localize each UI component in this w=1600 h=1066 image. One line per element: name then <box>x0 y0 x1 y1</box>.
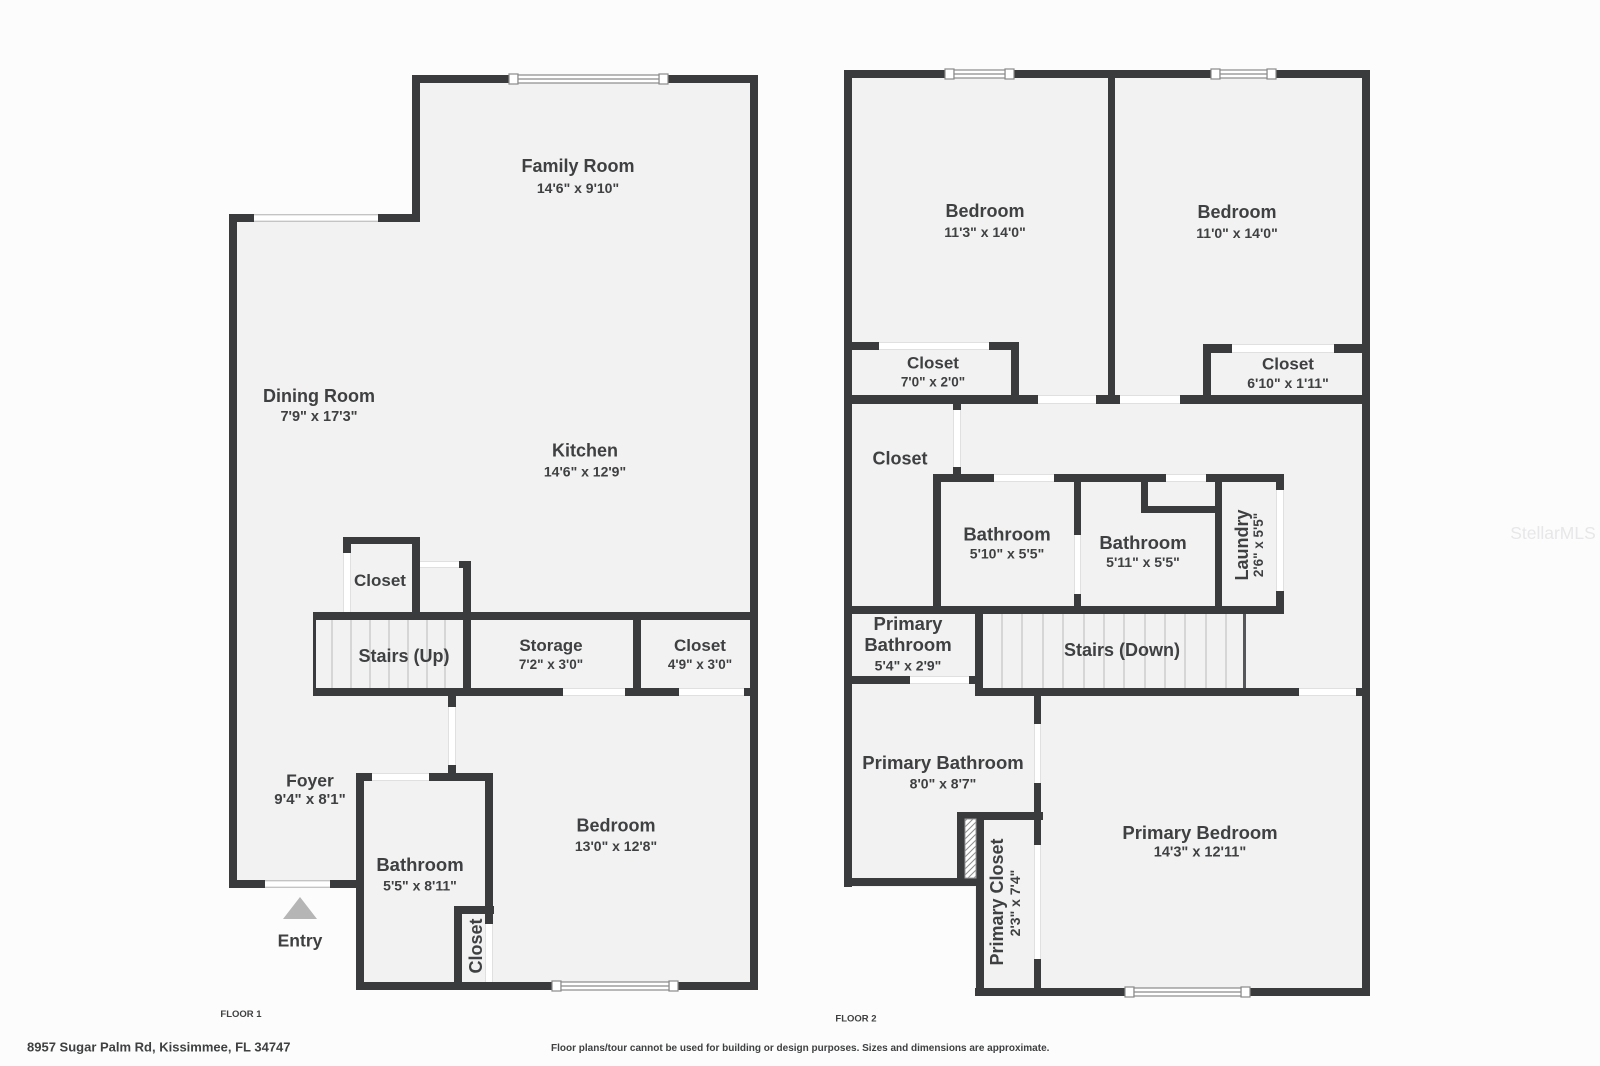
svg-text:5'10" x 5'5": 5'10" x 5'5" <box>970 546 1044 562</box>
svg-text:5'5" x 8'11": 5'5" x 8'11" <box>383 878 457 894</box>
svg-text:Bathroom: Bathroom <box>1099 532 1186 553</box>
svg-text:14'6" x 12'9": 14'6" x 12'9" <box>544 464 626 480</box>
svg-text:Closet: Closet <box>354 571 406 590</box>
svg-text:11'0" x 14'0": 11'0" x 14'0" <box>1196 225 1277 241</box>
svg-text:Primary Bathroom: Primary Bathroom <box>862 752 1023 773</box>
svg-text:Primary: Primary <box>874 613 944 634</box>
svg-text:8'0" x 8'7": 8'0" x 8'7" <box>910 776 977 792</box>
svg-text:2'6" x 5'5": 2'6" x 5'5" <box>1251 513 1266 577</box>
svg-text:Floor plans/tour cannot be use: Floor plans/tour cannot be used for buil… <box>551 1043 1050 1054</box>
svg-text:Bedroom: Bedroom <box>576 816 655 836</box>
svg-text:14'3" x 12'11": 14'3" x 12'11" <box>1154 845 1246 861</box>
svg-text:8957 Sugar Palm Rd, Kissimmee,: 8957 Sugar Palm Rd, Kissimmee, FL 34747 <box>27 1040 291 1055</box>
svg-text:Entry: Entry <box>278 931 323 951</box>
svg-text:Kitchen: Kitchen <box>552 441 618 461</box>
svg-text:Primary Closet: Primary Closet <box>987 838 1007 965</box>
svg-text:Dining Room: Dining Room <box>263 386 375 406</box>
svg-text:Stairs (Up): Stairs (Up) <box>358 646 449 666</box>
svg-text:Closet: Closet <box>674 636 726 655</box>
svg-text:Closet: Closet <box>466 918 486 973</box>
svg-text:5'4" x 2'9": 5'4" x 2'9" <box>875 658 942 674</box>
svg-text:Bathroom: Bathroom <box>864 634 951 655</box>
svg-text:StellarMLS: StellarMLS <box>1510 523 1596 543</box>
svg-text:Bedroom: Bedroom <box>1197 202 1276 222</box>
svg-text:Closet: Closet <box>872 449 927 469</box>
svg-text:FLOOR 2: FLOOR 2 <box>835 1014 876 1025</box>
svg-text:7'9" x 17'3": 7'9" x 17'3" <box>280 409 357 425</box>
svg-text:Closet: Closet <box>907 354 959 373</box>
svg-text:Foyer: Foyer <box>286 771 334 791</box>
svg-text:13'0" x 12'8": 13'0" x 12'8" <box>575 838 657 854</box>
svg-text:Laundry: Laundry <box>1232 509 1252 580</box>
svg-text:Stairs (Down): Stairs (Down) <box>1064 640 1180 660</box>
svg-text:Closet: Closet <box>1262 355 1314 374</box>
svg-text:7'0" x 2'0": 7'0" x 2'0" <box>901 375 965 390</box>
svg-text:4'9" x 3'0": 4'9" x 3'0" <box>668 657 732 672</box>
svg-text:6'10" x 1'11": 6'10" x 1'11" <box>1247 375 1328 391</box>
svg-text:Bedroom: Bedroom <box>945 201 1024 221</box>
svg-text:2'3" x 7'4": 2'3" x 7'4" <box>1007 870 1023 937</box>
svg-text:7'2" x 3'0": 7'2" x 3'0" <box>519 657 583 672</box>
svg-text:Bathroom: Bathroom <box>376 854 463 875</box>
svg-text:FLOOR 1: FLOOR 1 <box>220 1009 262 1020</box>
svg-text:Storage: Storage <box>519 636 582 655</box>
svg-text:Bathroom: Bathroom <box>963 524 1050 545</box>
svg-text:Primary Bedroom: Primary Bedroom <box>1122 822 1277 843</box>
svg-text:9'4" x 8'1": 9'4" x 8'1" <box>274 791 345 808</box>
svg-text:14'6" x 9'10": 14'6" x 9'10" <box>537 180 619 196</box>
svg-text:5'11" x 5'5": 5'11" x 5'5" <box>1106 554 1180 570</box>
svg-text:Family Room: Family Room <box>521 156 634 176</box>
svg-text:11'3" x 14'0": 11'3" x 14'0" <box>944 224 1025 240</box>
